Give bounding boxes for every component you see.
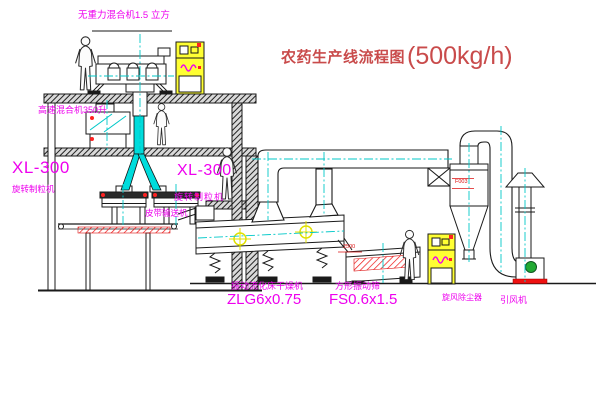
- page-title: 农药生产线流程图 (500kg/h): [281, 42, 513, 71]
- sieve-dimension-annotation: 2500: [343, 245, 355, 251]
- control-cabinet-2: [428, 234, 455, 284]
- person-figure: [154, 104, 169, 145]
- title-text: 农药生产线流程图: [281, 46, 405, 67]
- granulator-right-name-label: 旋转制粒机: [174, 193, 224, 202]
- flowchart-canvas: 农药生产线流程图 (500kg/h) 无重力混合机1.5 立方 高速混合机350…: [0, 0, 600, 403]
- cyclone-label: 旋风除尘器: [442, 294, 482, 302]
- exhaust-duct: [252, 150, 450, 222]
- title-capacity: (500kg/h): [407, 42, 513, 71]
- ground-line: [38, 284, 596, 291]
- control-cabinet-1: [176, 42, 204, 94]
- cyclone-tag-annotation: F003: [455, 180, 468, 186]
- granulator-right-model-label: XL-300: [177, 163, 232, 179]
- sieve-model-label: FS0.6x1.5: [329, 292, 397, 307]
- granulator-left-model-label: XL-300: [12, 159, 70, 176]
- belt-conveyor-label: 皮带输送机: [145, 209, 188, 218]
- fan-label: 引风机: [500, 296, 527, 305]
- gravity-mixer-label: 无重力混合机1.5 立方: [78, 11, 170, 21]
- dryer-name-label: 振动流化床干燥机: [231, 282, 303, 291]
- granulator-left-name-label: 旋转制粒机: [12, 185, 55, 194]
- high-speed-mixer-label: 高速混合机350升: [38, 106, 107, 115]
- induced-draft-fan: [513, 258, 547, 284]
- belt-conveyor: [58, 224, 178, 233]
- dryer-model-label: ZLG6x0.75: [227, 292, 301, 307]
- person-figure: [76, 37, 96, 90]
- sieve-name-label: 方形振动筛: [335, 282, 380, 291]
- granulator-left: [100, 186, 148, 224]
